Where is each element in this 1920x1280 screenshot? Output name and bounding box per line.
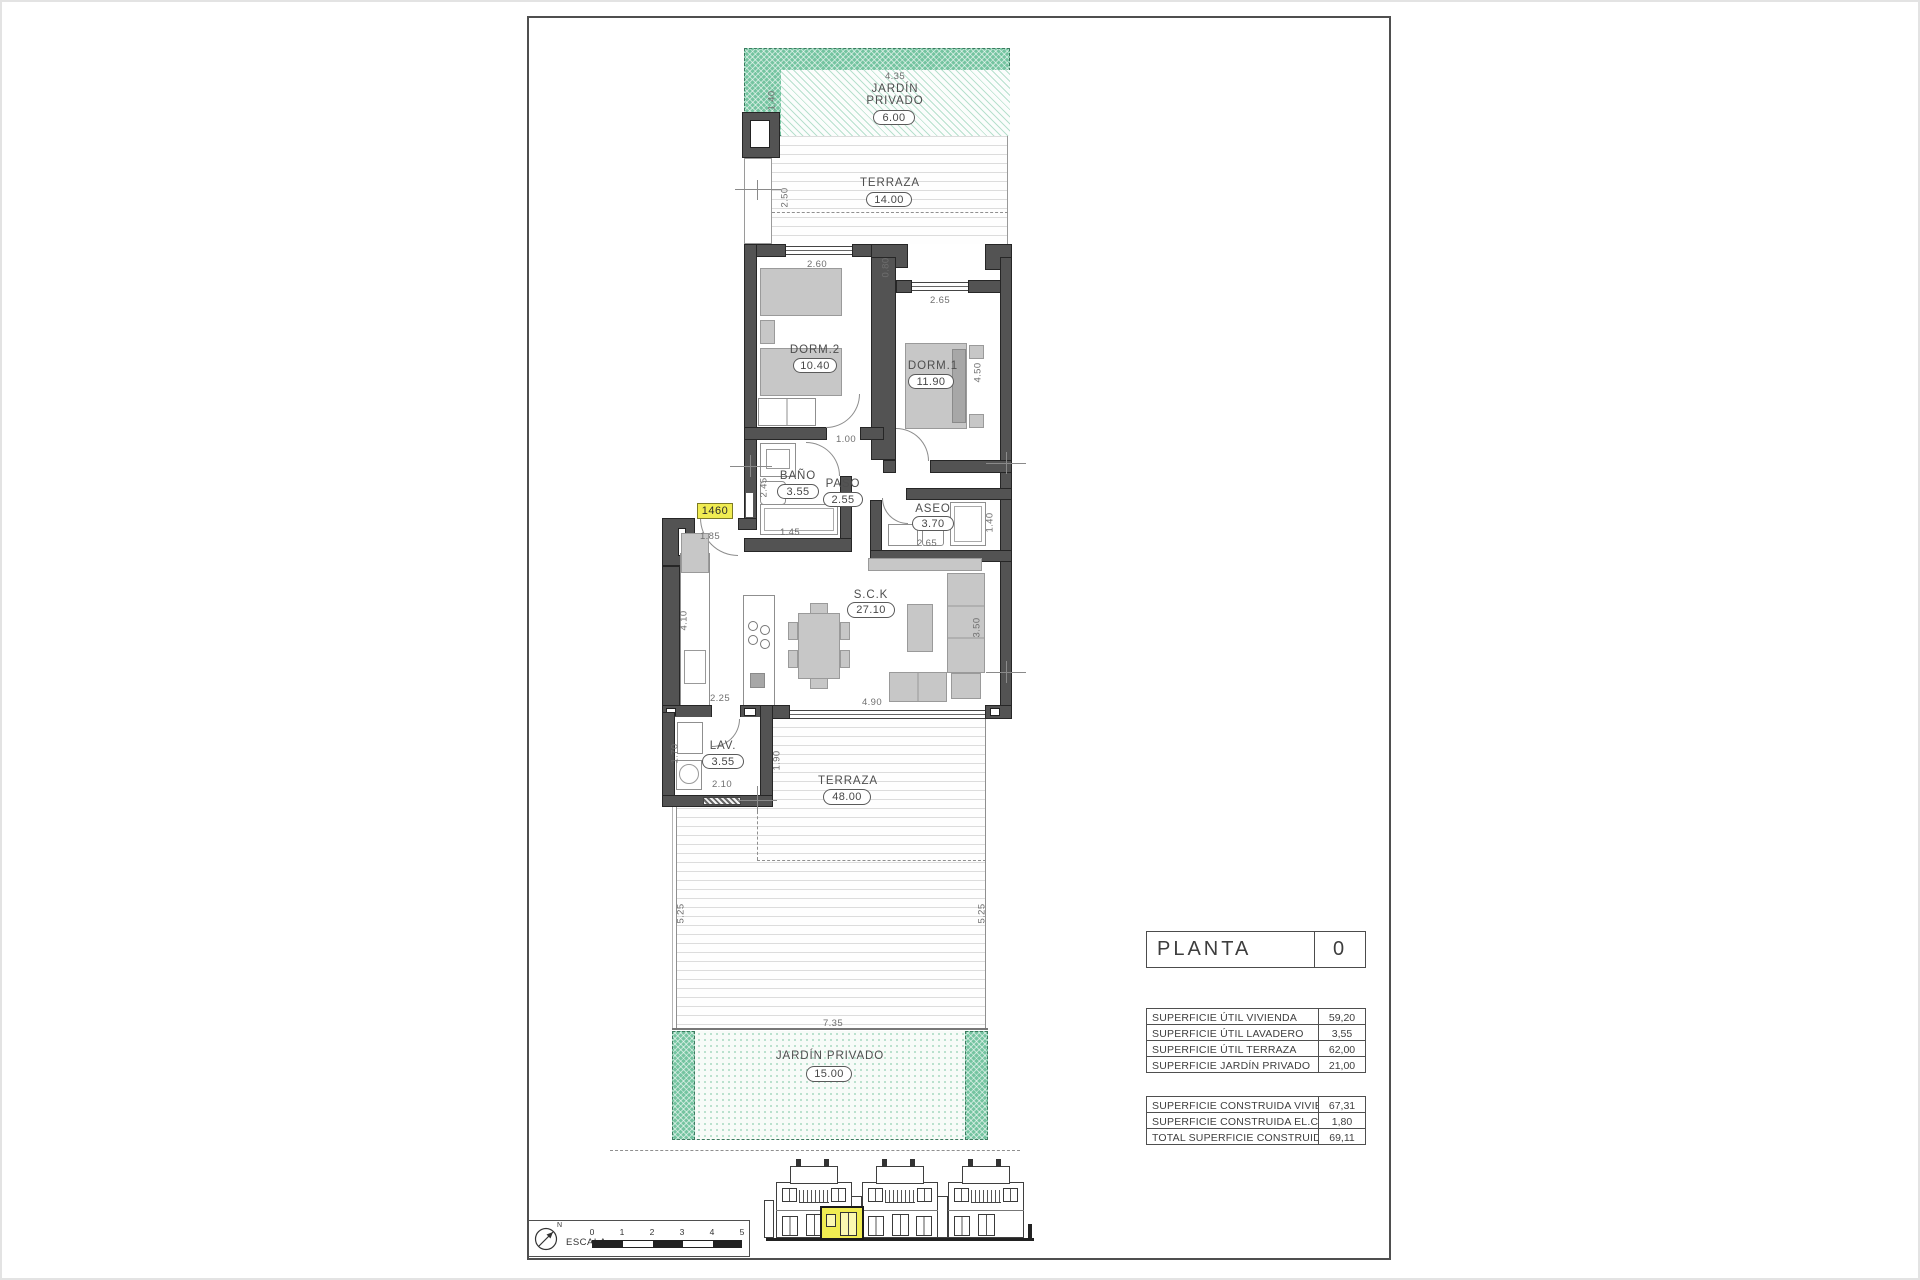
- ottoman: [951, 673, 981, 699]
- elevation-end-post: [1028, 1224, 1032, 1240]
- hob-burner: [760, 639, 770, 649]
- elevation-roof-volume: [962, 1166, 1010, 1184]
- elevation-floor-line: [862, 1210, 938, 1211]
- scale-tick: 2: [646, 1227, 658, 1237]
- table-row-label: SUPERFICIE ÚTIL LAVADERO: [1147, 1025, 1318, 1040]
- elevation-window: [917, 1188, 932, 1202]
- table-row-value: 3,55: [1318, 1025, 1365, 1040]
- elevation-chimney: [996, 1159, 1001, 1167]
- table-row-value: 21,00: [1318, 1057, 1365, 1072]
- room-label-terraza-top: TERRAZA: [850, 177, 930, 189]
- dim-label: 4.50: [973, 353, 984, 393]
- area-pill-aseo: 3.70: [912, 516, 954, 531]
- area-pill-paso: 2.55: [823, 492, 863, 507]
- table-row-label: SUPERFICIE ÚTIL VIVIENDA: [1147, 1009, 1318, 1024]
- sliding-door: [790, 710, 986, 719]
- wall-niche: [745, 492, 754, 518]
- plan-title: PLANTA: [1157, 938, 1251, 961]
- room-label-jardin-bottom: JARDÍN PRIVADO: [775, 1050, 885, 1062]
- table-row-value: 62,00: [1318, 1041, 1365, 1056]
- area-pill-bano: 3.55: [777, 484, 819, 499]
- chair: [788, 622, 798, 640]
- title-block-name-cell: PLANTA: [1147, 932, 1315, 967]
- area-pill-dorm2: 10.40: [793, 358, 837, 373]
- wardrobe: [758, 398, 816, 426]
- scale-tick: 1: [616, 1227, 628, 1237]
- area-pill-dorm1: 11.90: [908, 374, 954, 389]
- bed-single: [760, 268, 842, 316]
- elevation-railing: [799, 1190, 829, 1203]
- table-row-value: 69,11: [1318, 1129, 1365, 1144]
- table-row: SUPERFICIE CONSTRUIDA VIVIENDA 67,31: [1146, 1096, 1366, 1113]
- wall-segment: [883, 460, 896, 473]
- table-row-label: SUPERFICIE CONSTRUIDA EL.COMUNES: [1147, 1113, 1318, 1128]
- elevation-roof-volume: [790, 1166, 838, 1184]
- section-tick: [1006, 661, 1007, 683]
- table-row-label: SUPERFICIE JARDÍN PRIVADO: [1147, 1057, 1318, 1072]
- wall-segment: [662, 566, 680, 712]
- elevation-chimney: [824, 1159, 829, 1167]
- room-label-bano: BAÑO: [768, 470, 828, 482]
- area-pill-terraza-top: 14.00: [866, 192, 912, 207]
- dim-label: 1.85: [690, 531, 730, 542]
- table-row: TOTAL SUPERFICIE CONSTRUIDA 69,11: [1146, 1129, 1366, 1145]
- closet-niche: [750, 120, 770, 148]
- table-row-value: 1,80: [1318, 1113, 1365, 1128]
- wall-niche: [744, 708, 756, 716]
- dim-label: 4.90: [850, 697, 894, 708]
- wall-segment: [738, 518, 757, 530]
- elevation-window: [1003, 1188, 1018, 1202]
- dim-label: 1.00: [826, 434, 866, 445]
- section-tick: [735, 189, 781, 190]
- area-pill-sck: 27.10: [847, 602, 895, 618]
- room-label-jardin-top: JARDÍN PRIVADO: [845, 83, 945, 107]
- dim-label: 4.35: [860, 71, 930, 82]
- elevation-window: [868, 1216, 884, 1236]
- garden-bottom-hatch-left: [672, 1031, 695, 1140]
- elevation-ground-line: [766, 1238, 1034, 1241]
- north-label: N: [557, 1222, 562, 1229]
- elevation-door: [978, 1214, 995, 1236]
- areas-table-construida: SUPERFICIE CONSTRUIDA VIVIENDA 67,31 SUP…: [1146, 1096, 1366, 1145]
- section-tick: [730, 466, 772, 467]
- dining-table: [798, 613, 840, 679]
- wall-segment: [744, 427, 827, 440]
- dim-label: 5.25: [676, 894, 687, 934]
- scale-tick: 4: [706, 1227, 718, 1237]
- hob-burner: [748, 621, 758, 631]
- hob-burner: [760, 625, 770, 635]
- dim-label: 1.70: [670, 734, 681, 774]
- elevation-highlight-door: [840, 1212, 857, 1236]
- room-label-paso: PASO: [821, 478, 865, 490]
- wall-segment: [744, 244, 757, 530]
- scale-tick: 3: [676, 1227, 688, 1237]
- room-label-terraza-main: TERRAZA: [818, 775, 878, 787]
- dim-label: 3.50: [972, 608, 983, 648]
- terrace-side-strip: [744, 158, 772, 244]
- room-label-dorm1: DORM.1: [903, 360, 963, 372]
- chair: [810, 603, 828, 614]
- area-pill-jardin-top: 6.00: [873, 110, 915, 125]
- dim-label: 4.10: [679, 601, 690, 641]
- elevation-door: [892, 1214, 909, 1236]
- dim-label: 2.10: [702, 779, 742, 790]
- plan-level: 0: [1333, 938, 1347, 961]
- scale-tick: 0: [586, 1227, 598, 1237]
- room-label-sck: S.C.K: [841, 589, 901, 601]
- chair: [810, 678, 828, 689]
- elevation-chimney: [968, 1159, 973, 1167]
- room-label-line1: JARDÍN: [872, 83, 919, 95]
- elevation-floor-line: [948, 1210, 1024, 1211]
- room-label-lav: LAV.: [700, 740, 746, 752]
- dim-label: 1.90: [772, 741, 783, 781]
- nightstand: [969, 414, 984, 428]
- dim-label: 2.65: [920, 295, 960, 306]
- elevation-roof-volume: [876, 1166, 924, 1184]
- terrace-top-deck: [772, 136, 1008, 244]
- table-row-label: SUPERFICIE CONSTRUIDA VIVIENDA: [1147, 1097, 1318, 1112]
- scale-tick: 5: [736, 1227, 748, 1237]
- dim-label: 7.35: [813, 1018, 853, 1029]
- elevation-window: [916, 1216, 932, 1236]
- wall-segment: [906, 488, 1012, 500]
- elevation-window: [954, 1216, 970, 1236]
- elevation-railing: [885, 1190, 915, 1203]
- dim-label: 1.40: [985, 503, 996, 543]
- window-dorm1: [912, 282, 968, 291]
- room-label-aseo: ASEO: [905, 503, 961, 515]
- dim-label: 2.25: [700, 693, 740, 704]
- elevation-railing: [971, 1190, 1001, 1203]
- area-pill-jardin-bottom: 15.00: [806, 1066, 852, 1082]
- coffee-table: [907, 604, 933, 652]
- section-tick: [1006, 452, 1007, 474]
- table-row-value: 67,31: [1318, 1097, 1365, 1112]
- table-row: SUPERFICIE ÚTIL LAVADERO 3,55: [1146, 1025, 1366, 1041]
- elevation-window: [868, 1188, 883, 1202]
- dim-label: 2.45: [759, 468, 770, 508]
- room-label-line2: PRIVADO: [866, 95, 923, 107]
- elevation-chimney: [882, 1159, 887, 1167]
- table-row: SUPERFICIE JARDÍN PRIVADO 21,00: [1146, 1057, 1366, 1073]
- dim-label: 5.25: [977, 894, 988, 934]
- covered-area-dashed: [757, 860, 986, 861]
- dim-label: 1.45: [770, 527, 810, 538]
- table-row: SUPERFICIE ÚTIL VIVIENDA 59,20: [1146, 1008, 1366, 1025]
- table-row-label: SUPERFICIE ÚTIL TERRAZA: [1147, 1041, 1318, 1056]
- window-dorm2: [786, 246, 852, 255]
- wall-niche: [990, 708, 1000, 716]
- drawing-page: 4.35 JARDÍN PRIVADO 6.00 1.40 4.85 TERRA…: [0, 0, 1920, 1280]
- dim-label: 2.65: [905, 538, 949, 549]
- table-row: SUPERFICIE ÚTIL TERRAZA 62,00: [1146, 1041, 1366, 1057]
- section-tick: [757, 786, 758, 814]
- table-row: SUPERFICIE CONSTRUIDA EL.COMUNES 1,80: [1146, 1113, 1366, 1129]
- boundary-dashed-line: [610, 1150, 1020, 1151]
- island-block: [750, 673, 765, 688]
- elevation-chimney: [796, 1159, 801, 1167]
- chair: [788, 650, 798, 668]
- title-block: PLANTA 0: [1146, 931, 1366, 968]
- elevation-window: [954, 1188, 969, 1202]
- section-tick: [757, 180, 758, 200]
- elevation-chimney: [910, 1159, 915, 1167]
- sofa-chaise: [889, 672, 947, 702]
- area-pill-terraza-main: 48.00: [823, 789, 871, 805]
- hob-burner: [748, 635, 758, 645]
- nightstand: [760, 320, 775, 344]
- chair: [840, 622, 850, 640]
- covered-area-dashed: [757, 806, 758, 860]
- elevation-window: [782, 1216, 798, 1236]
- unit-number-tag: 1460: [697, 503, 733, 519]
- elevation-highlight-window: [826, 1214, 836, 1227]
- area-pill-lav: 3.55: [702, 754, 744, 769]
- room-label-dorm2: DORM.2: [785, 344, 845, 356]
- wall-segment: [744, 538, 852, 552]
- washing-machine-drum: [679, 764, 699, 784]
- dim-label: 2.60: [797, 259, 837, 270]
- dim-label: 0.80: [881, 248, 892, 288]
- section-tick: [750, 455, 751, 477]
- table-row-label: TOTAL SUPERFICIE CONSTRUIDA: [1147, 1129, 1318, 1144]
- areas-table-util: SUPERFICIE ÚTIL VIVIENDA 59,20 SUPERFICI…: [1146, 1008, 1366, 1073]
- elevation-window: [782, 1188, 797, 1202]
- elevation-window: [831, 1188, 846, 1202]
- title-block-value-cell: 0: [1315, 932, 1365, 967]
- kitchen-sink: [684, 650, 706, 684]
- vent-grille: [703, 797, 741, 805]
- terrace-cover-dashed-line: [772, 212, 1008, 213]
- chair: [840, 650, 850, 668]
- sideboard: [868, 558, 982, 571]
- garden-bottom: [672, 1031, 988, 1140]
- table-row-value: 59,20: [1318, 1009, 1365, 1024]
- elevation-wing: [764, 1200, 774, 1238]
- kitchen-island: [743, 595, 775, 713]
- wall-segment: [930, 460, 1012, 473]
- wall-segment: [896, 280, 912, 293]
- scale-bar: [592, 1240, 742, 1248]
- garden-bottom-hatch-right: [965, 1031, 988, 1140]
